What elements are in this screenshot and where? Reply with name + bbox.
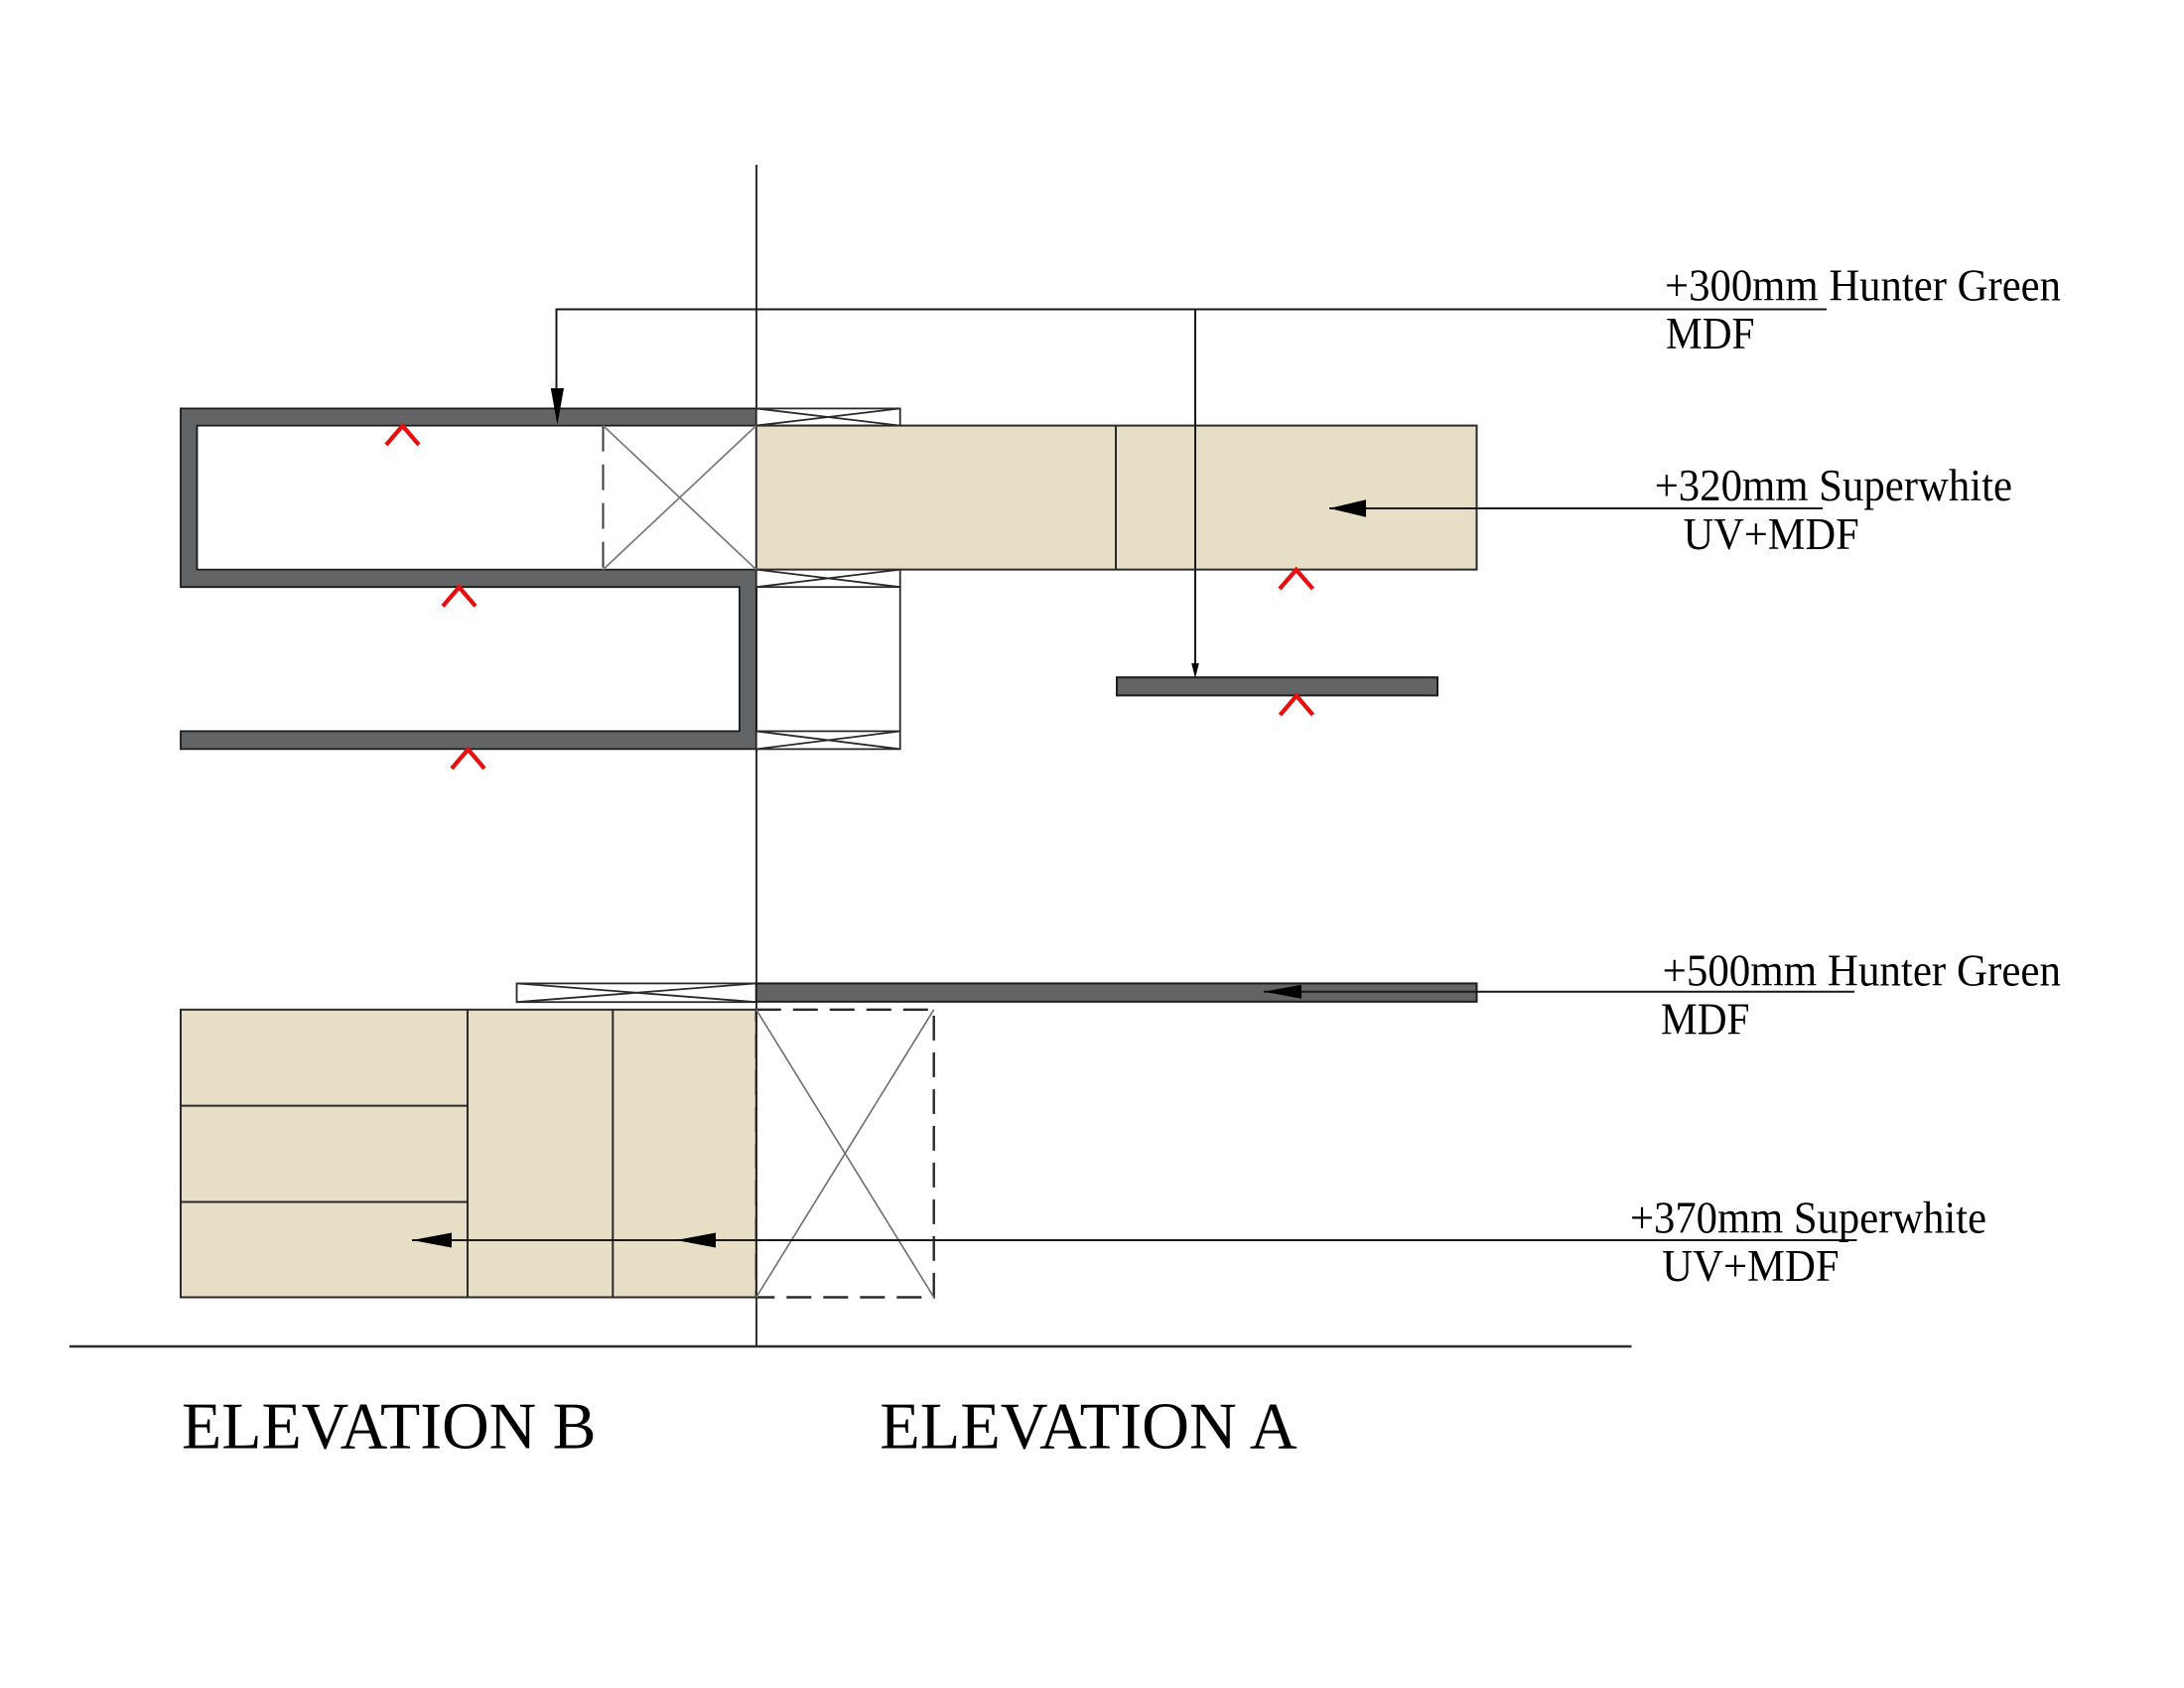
svg-text:ELEVATION A: ELEVATION A xyxy=(880,1390,1297,1464)
svg-text:UV+MDF: UV+MDF xyxy=(1684,509,1859,559)
svg-text:MDF: MDF xyxy=(1661,994,1750,1044)
svg-text:+500mm Hunter Green: +500mm Hunter Green xyxy=(1663,946,2061,996)
svg-text:+300mm Hunter Green: +300mm Hunter Green xyxy=(1665,260,2061,310)
svg-text:UV+MDF: UV+MDF xyxy=(1662,1241,1839,1291)
svg-text:ELEVATION B: ELEVATION B xyxy=(182,1390,597,1464)
svg-text:MDF: MDF xyxy=(1666,309,1755,358)
svg-text:+370mm Superwhite: +370mm Superwhite xyxy=(1630,1193,1986,1242)
svg-text:+320mm Superwhite: +320mm Superwhite xyxy=(1655,461,2012,510)
